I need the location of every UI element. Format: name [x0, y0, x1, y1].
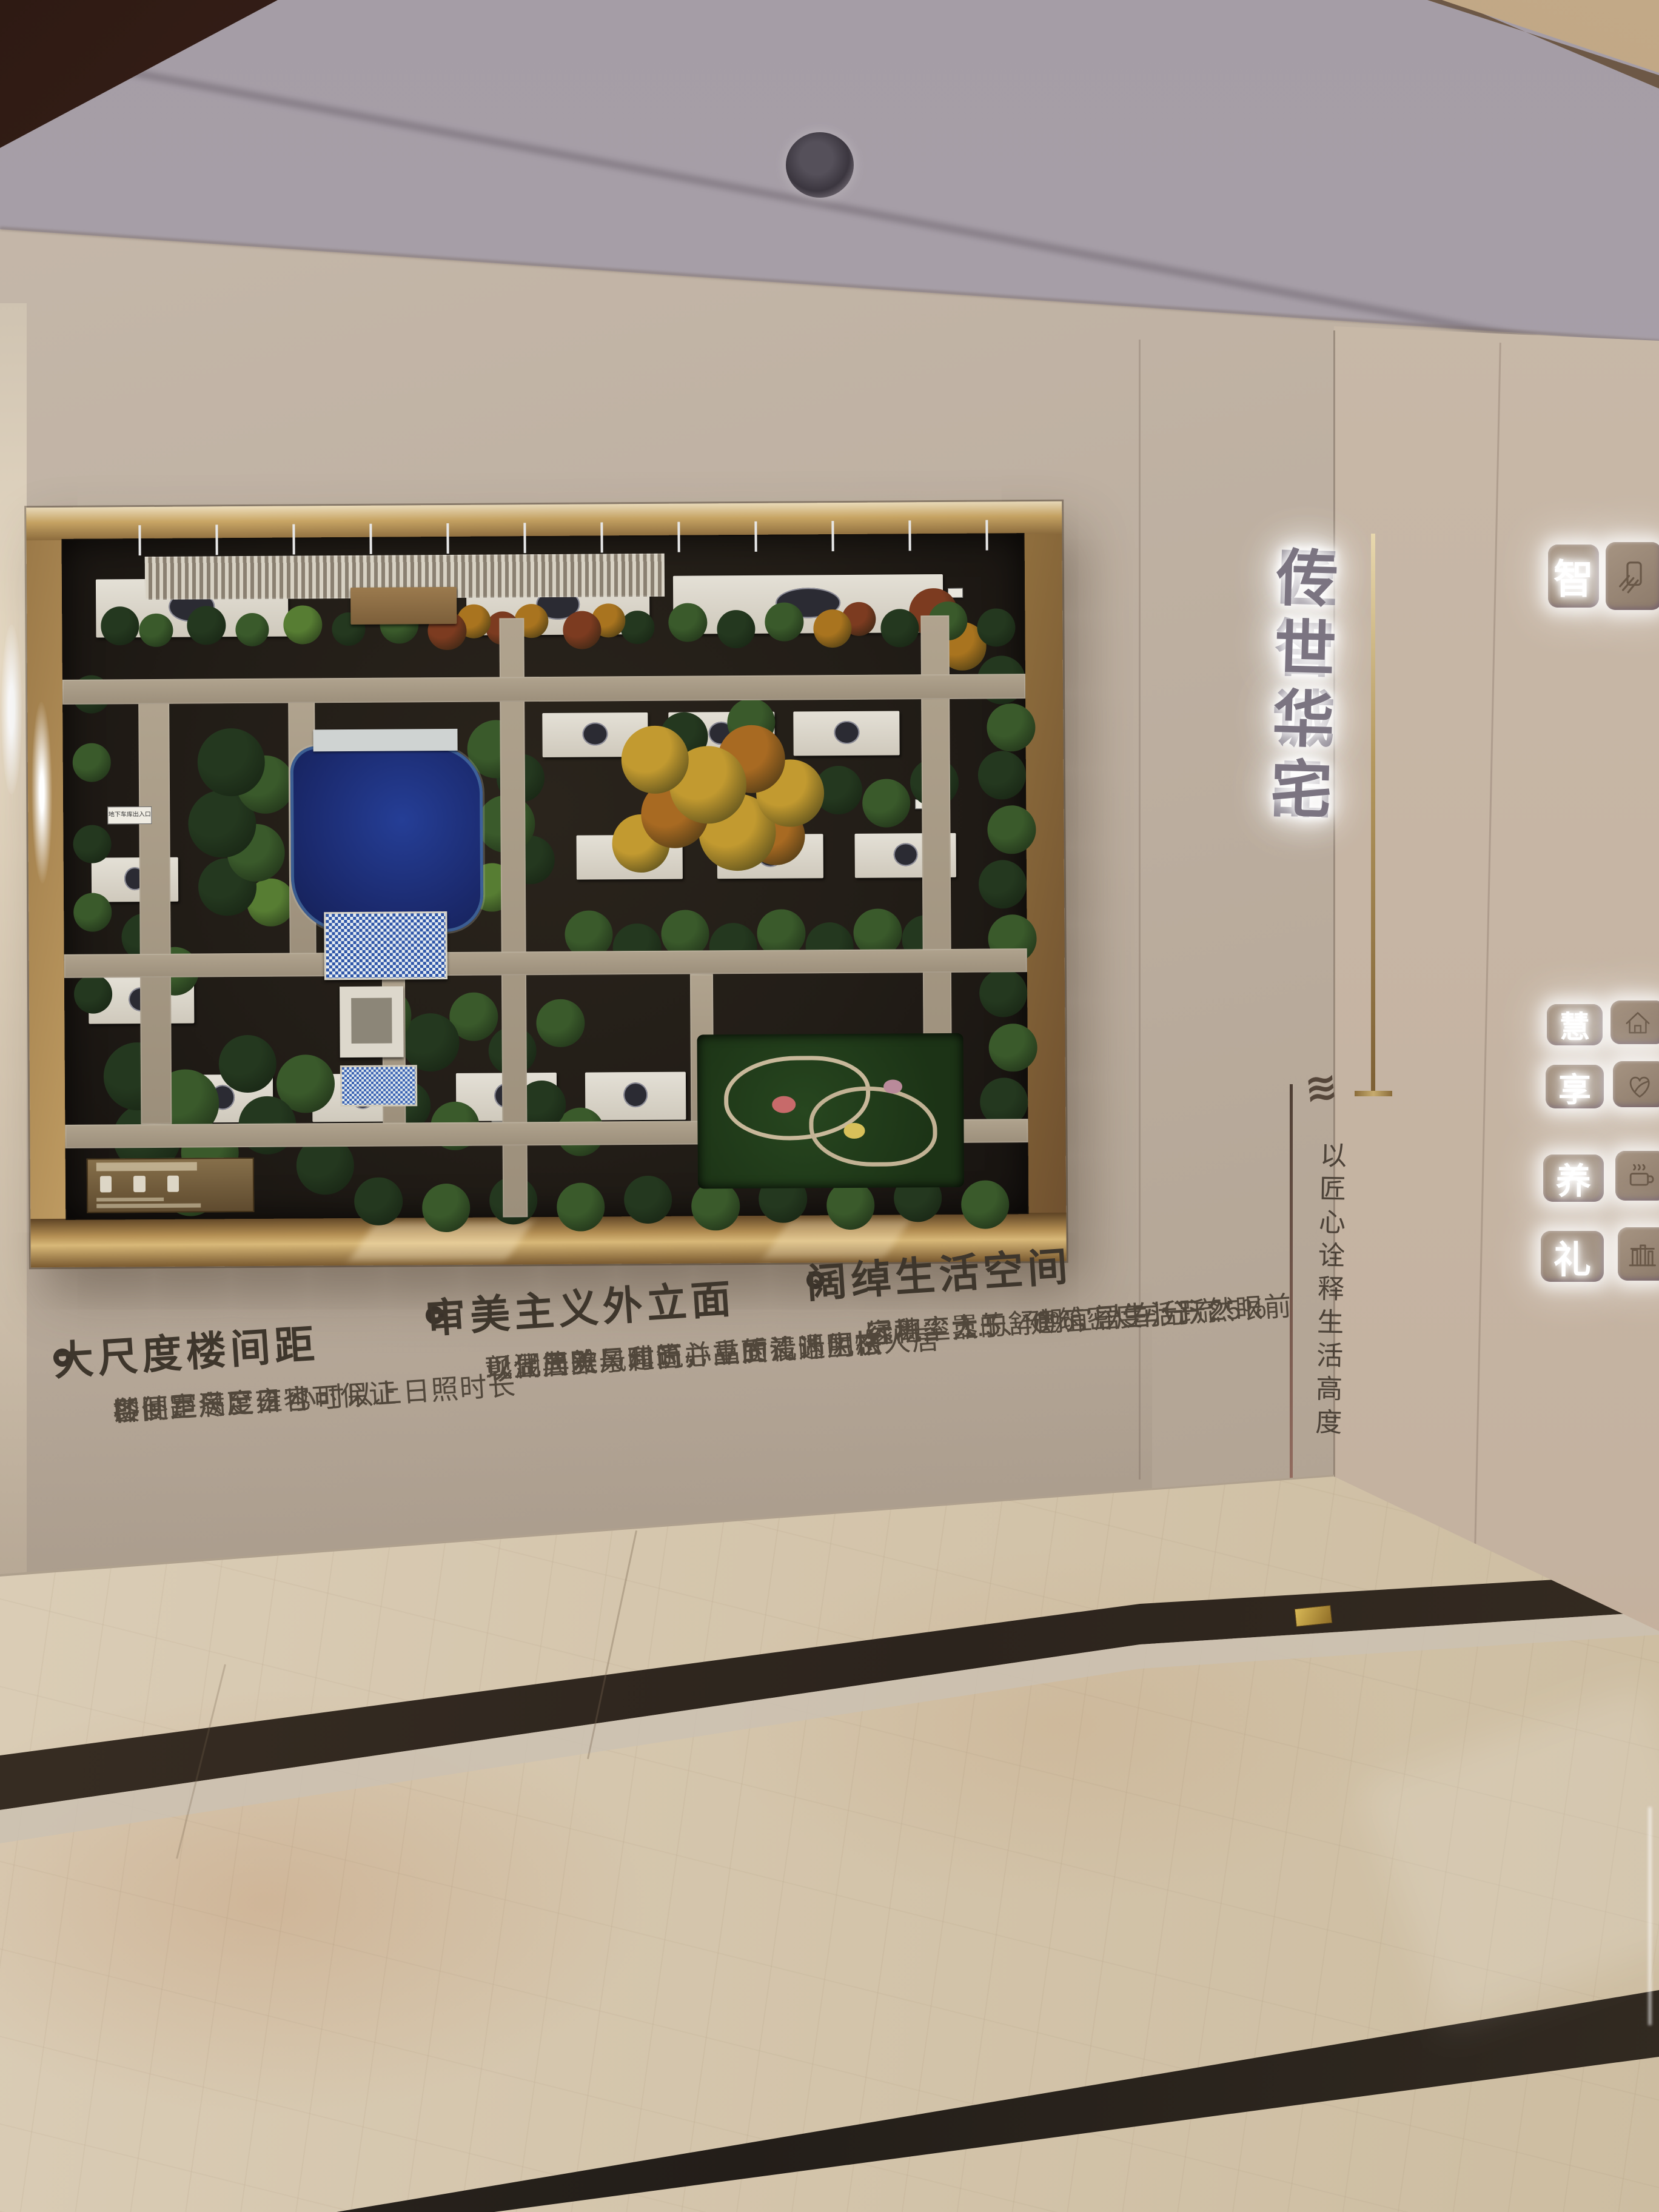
- house-icon-tile: [1610, 1000, 1659, 1044]
- steaming-cup-icon-tile: [1615, 1151, 1659, 1201]
- amenity-char-tile-3: 享: [1546, 1065, 1604, 1108]
- amenity-char-tile-2: 慧: [1547, 1004, 1603, 1045]
- pavilion-icon: [1623, 1233, 1659, 1275]
- amenity-character: 养: [1556, 1153, 1591, 1204]
- amenity-character: 智: [1553, 547, 1594, 605]
- heart-leaf-icon: [1618, 1066, 1659, 1103]
- steaming-cup-icon: [1620, 1156, 1659, 1196]
- amenity-char-tile-4: 养: [1543, 1155, 1604, 1202]
- amenity-character: 享: [1558, 1063, 1591, 1111]
- heart-leaf-icon-tile: [1613, 1061, 1659, 1107]
- amenity-character: 礼: [1553, 1229, 1591, 1284]
- smart-device-icon: [1611, 549, 1656, 603]
- amenity-char-tile-5: 礼: [1541, 1231, 1604, 1282]
- brass-floor-plate: [1295, 1605, 1333, 1627]
- floor-reflection-line: [1648, 1807, 1652, 2025]
- house-icon: [1616, 1005, 1659, 1040]
- smart-device-icon-tile: [1606, 542, 1659, 610]
- showroom-photo: 地下车库出入口 大尺度楼间距 楼间距尺度雍容 即便是冬至日也可保证 各卧室满足 …: [0, 0, 1659, 2212]
- amenity-char-tile-1: 智: [1548, 545, 1599, 608]
- amenity-character: 慧: [1560, 1003, 1590, 1047]
- pavilion-icon-tile: [1618, 1227, 1659, 1281]
